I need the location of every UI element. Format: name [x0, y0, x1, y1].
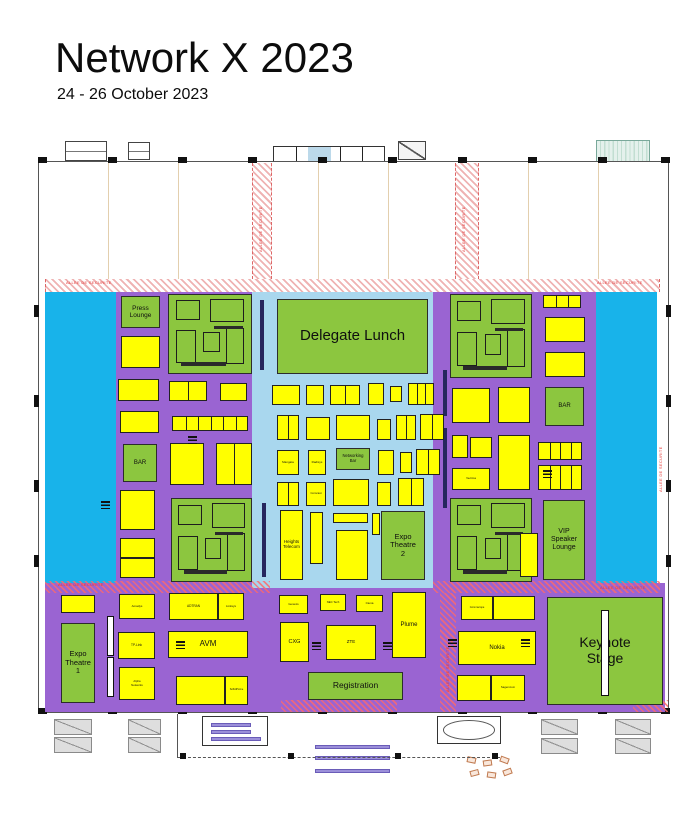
booth	[277, 415, 299, 440]
booth	[120, 490, 155, 530]
wall-door-marker	[34, 555, 39, 567]
furniture-outline	[226, 328, 244, 364]
booth	[272, 385, 300, 405]
wall-door-marker	[34, 305, 39, 317]
wall-door-marker	[666, 480, 671, 492]
booth-divider	[432, 415, 433, 439]
booth-divider	[568, 296, 569, 307]
booth	[400, 452, 412, 473]
zone-bar-left: BAR	[123, 444, 157, 482]
event-title: Network X 2023	[55, 34, 354, 82]
furniture-bar	[463, 570, 507, 574]
service-block	[202, 716, 268, 746]
zone-networking-bar: Networking Bar	[336, 448, 370, 470]
booth-zte: ZTE	[326, 625, 376, 660]
stairs	[615, 719, 651, 735]
booth-divider	[223, 417, 224, 430]
booth-heights-telecom: Heights Telecom	[280, 510, 303, 580]
booth-radisys: Radisys	[308, 450, 326, 475]
furniture-bar	[463, 366, 507, 370]
wall-line	[38, 161, 39, 713]
equipment-mark	[211, 723, 251, 727]
equipment-mark	[211, 737, 261, 741]
furniture-outline	[485, 538, 501, 559]
stairs	[541, 719, 578, 735]
booth	[333, 479, 369, 506]
booth	[416, 449, 440, 475]
booth-divider	[556, 296, 557, 307]
booth-divider	[234, 444, 235, 484]
booth	[336, 415, 370, 440]
wall-door-marker	[34, 395, 39, 407]
security-aisle-label: ALLEE DE SECURITE	[445, 646, 450, 692]
wall-door-marker	[666, 305, 671, 317]
grid-line	[388, 163, 389, 279]
booth	[336, 530, 368, 580]
furniture-outline	[491, 503, 525, 528]
booth	[169, 381, 207, 401]
door-marker	[312, 642, 321, 650]
furniture-outline	[203, 332, 219, 352]
zone-registration: Registration	[308, 672, 403, 700]
booth	[543, 295, 581, 308]
oval-counter	[443, 720, 495, 740]
booth	[545, 352, 585, 377]
booth-divider	[288, 416, 289, 439]
column-marker	[528, 157, 537, 163]
booth-plume: Plume	[392, 592, 426, 658]
booth	[220, 383, 247, 401]
column-marker	[598, 157, 607, 163]
stage-truss	[107, 657, 114, 697]
zone-lounge-area-top-right	[450, 294, 532, 378]
stairs	[128, 719, 161, 735]
divider	[340, 147, 341, 161]
wall-door-marker	[34, 480, 39, 492]
wall-door-marker	[666, 395, 671, 407]
partition-bar	[262, 503, 266, 577]
booth	[420, 414, 444, 440]
furniture-mark	[483, 759, 493, 766]
furniture-mark	[469, 769, 479, 777]
security-aisle	[455, 163, 479, 279]
booth-divider	[550, 443, 551, 459]
wall-line	[668, 161, 669, 713]
security-aisle	[45, 279, 660, 292]
booth	[498, 435, 530, 490]
booth-divider	[345, 386, 346, 404]
furniture-bar	[215, 532, 243, 535]
zone-expo-theatre-2: Expo Theatre 2	[381, 511, 425, 580]
event-dates: 24 - 26 October 2023	[57, 86, 208, 104]
security-aisle-label: ALLEE DE SECURITE	[66, 280, 112, 285]
zone-lounge-area-bottom-left	[171, 498, 252, 582]
booth-divider	[411, 479, 412, 505]
booth-mangata: Mangata	[277, 450, 299, 475]
column-marker	[38, 157, 47, 163]
booth-divider	[571, 443, 572, 459]
booth	[172, 416, 248, 431]
booth	[390, 386, 402, 402]
booth-softathome: SoftAtHome	[225, 676, 248, 705]
booth	[368, 383, 384, 405]
booth	[120, 558, 155, 578]
booth-comcast: Comcast	[306, 482, 326, 506]
column-marker	[318, 157, 327, 163]
booth-nec-tech: NEC Tech	[320, 594, 346, 611]
booth	[121, 336, 160, 368]
furniture-outline	[491, 299, 525, 324]
booth-divider	[186, 417, 187, 430]
furniture-bar	[181, 362, 226, 366]
stairs	[54, 737, 92, 753]
booth	[408, 383, 434, 405]
column-marker	[108, 157, 117, 163]
booth-divider	[560, 466, 561, 489]
security-aisle	[281, 700, 397, 712]
booth-divider	[211, 417, 212, 430]
grid-line	[178, 163, 179, 279]
booth	[170, 443, 204, 485]
door-marker	[176, 641, 185, 649]
door-marker	[188, 436, 197, 444]
partition-bar	[260, 300, 264, 370]
furniture-mark	[487, 771, 497, 778]
furniture-outline	[176, 300, 201, 320]
booth-divider	[188, 382, 189, 400]
door-marker	[101, 501, 110, 509]
grid-line	[108, 163, 109, 279]
booth-genexis: Genexis	[279, 595, 308, 614]
booth-commscope: Commscope	[461, 596, 493, 620]
security-aisle-label: ALLEE DE SECURITE	[258, 206, 263, 252]
door-marker	[543, 470, 552, 478]
booth	[377, 419, 391, 440]
booth	[398, 478, 424, 506]
stairs	[541, 738, 578, 754]
grid-line	[318, 163, 319, 279]
grid-line	[598, 163, 599, 279]
booth	[452, 388, 490, 423]
post-marker	[288, 753, 294, 759]
divider	[362, 147, 363, 161]
zone-bar-right: BAR	[545, 387, 584, 426]
partition-bar	[443, 428, 447, 508]
booth	[176, 676, 225, 705]
furniture-outline	[507, 329, 525, 367]
booth	[372, 513, 380, 535]
wall-line	[177, 714, 178, 758]
booth	[470, 437, 492, 458]
security-aisle-label: ALLEE DE SECURITE	[600, 585, 646, 590]
zone-open-space	[45, 292, 116, 583]
furniture-outline	[210, 299, 244, 322]
equipment-mark	[211, 730, 251, 734]
booth-divider	[428, 450, 429, 474]
booth-adtran: ADTRAN	[169, 593, 218, 620]
service-structure	[398, 141, 426, 160]
furniture-outline	[457, 505, 481, 526]
stage-truss	[601, 610, 609, 696]
booth	[520, 533, 538, 577]
partition-bar	[443, 370, 447, 416]
stairs	[54, 719, 92, 735]
security-aisle-label: ALLEE DE SECURITE	[658, 446, 663, 492]
booth	[457, 675, 491, 701]
zone-delegate-lunch: Delegate Lunch	[277, 299, 428, 374]
booth	[310, 512, 323, 564]
furniture-bar	[495, 328, 523, 331]
loading-dock	[65, 141, 107, 161]
booth-vecima: Vecima	[452, 468, 490, 490]
door-marker	[383, 642, 392, 650]
column-marker	[661, 157, 670, 163]
booth	[377, 482, 391, 506]
service-block	[437, 716, 501, 744]
door-marker	[521, 639, 530, 647]
booth	[118, 379, 159, 401]
booth	[277, 482, 299, 506]
post-marker	[180, 753, 186, 759]
furniture-bar	[214, 326, 243, 329]
furniture-outline	[176, 330, 197, 363]
booth-divider	[288, 483, 289, 505]
stairs	[128, 737, 161, 753]
booth-divider	[417, 384, 418, 404]
booth-divider	[571, 466, 572, 489]
booth	[61, 595, 95, 613]
booth	[216, 443, 252, 485]
furniture-bar	[184, 570, 227, 574]
furniture-mark	[502, 768, 513, 777]
booth	[306, 385, 324, 405]
security-aisle-label: ALLEE DE SECURITE	[597, 280, 643, 285]
zone-lounge-area-top-left	[168, 294, 252, 374]
wall-line	[38, 712, 669, 713]
security-aisle-label: ALLEE DE SECURITE	[58, 582, 104, 587]
booth-tp-link: TP-Link	[118, 632, 155, 659]
floor-plan: Network X 2023 24 - 26 October 2023 Pres…	[0, 0, 700, 828]
booth	[452, 435, 468, 458]
post-marker	[492, 753, 498, 759]
booth-amadys: Amadys	[119, 594, 155, 619]
furniture-bar	[495, 532, 523, 535]
column-marker	[178, 157, 187, 163]
boundary-dashed-line	[178, 757, 500, 758]
post-marker	[395, 753, 401, 759]
furniture-outline	[212, 503, 245, 528]
zone-expo-theatre-1: Expo Theatre 1	[61, 623, 95, 703]
furniture-outline	[178, 505, 202, 526]
booth	[120, 538, 155, 558]
booth	[120, 411, 159, 433]
zone-press-lounge: Press Lounge	[121, 296, 160, 328]
furniture-outline	[227, 533, 244, 571]
furniture-outline	[457, 536, 477, 570]
wall-line	[38, 161, 669, 162]
booth	[538, 442, 582, 460]
stage-truss	[107, 616, 114, 656]
booth-divider	[425, 384, 426, 404]
furniture-mark	[499, 756, 510, 765]
booth	[306, 417, 330, 440]
booth	[396, 415, 416, 440]
furniture-outline	[205, 538, 221, 559]
booth	[378, 450, 394, 475]
booth	[493, 596, 535, 620]
booth-divider	[406, 416, 407, 439]
booth-divider	[236, 417, 237, 430]
travelator	[315, 745, 390, 749]
divider	[296, 147, 297, 161]
booth-sagemcom: Sagemcom	[491, 675, 525, 701]
furniture-outline	[457, 301, 481, 322]
column-marker	[388, 157, 397, 163]
booth-cxg: CXG	[280, 622, 309, 662]
wall-door-marker	[666, 555, 671, 567]
entrance-structure	[273, 146, 385, 162]
booth	[330, 385, 360, 405]
furniture-outline	[178, 536, 198, 570]
booth	[545, 317, 585, 342]
booth-alpha-networks: Alpha Networks	[119, 667, 155, 700]
booth	[333, 513, 368, 523]
booth-linksys: Linksys	[218, 593, 244, 620]
booth-divider	[198, 417, 199, 430]
security-aisle-label: ALLEE DE SECURITE	[461, 206, 466, 252]
travelator	[315, 769, 390, 773]
booth-ciena: Ciena	[356, 595, 383, 612]
furniture-outline	[457, 332, 477, 366]
booth	[498, 387, 530, 423]
grid-line	[528, 163, 529, 279]
stairs	[615, 738, 651, 754]
loading-dock	[128, 142, 150, 160]
furniture-outline	[485, 334, 501, 355]
booth-nokia: Nokia	[458, 631, 536, 665]
booth-divider	[560, 443, 561, 459]
zone-open-space	[596, 292, 657, 583]
zone-vip-speaker-lounge: VIP Speaker Lounge	[543, 500, 585, 580]
